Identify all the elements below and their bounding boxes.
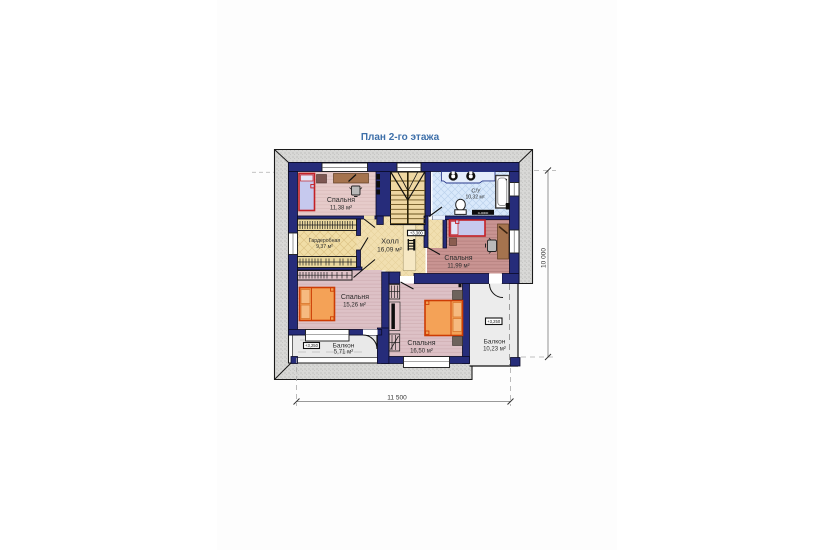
svg-text:+3,300: +3,300 bbox=[410, 231, 424, 236]
svg-text:Балкон: Балкон bbox=[333, 343, 355, 350]
svg-text:11,99 м²: 11,99 м² bbox=[447, 264, 469, 270]
svg-text:Спальня: Спальня bbox=[341, 294, 369, 301]
svg-text:16,50 м²: 16,50 м² bbox=[410, 349, 433, 355]
svg-text:15,26 м²: 15,26 м² bbox=[343, 303, 366, 309]
svg-text:11 500: 11 500 bbox=[387, 395, 407, 402]
svg-text:16,09 м²: 16,09 м² bbox=[377, 247, 403, 254]
svg-text:+3,250: +3,250 bbox=[487, 319, 501, 324]
svg-text:Балкон: Балкон bbox=[484, 339, 506, 346]
svg-text:о-оооо: о-оооо bbox=[478, 211, 489, 215]
svg-text:10 000: 10 000 bbox=[541, 248, 548, 268]
svg-text:11,38 м²: 11,38 м² bbox=[330, 206, 352, 212]
svg-text:Холл: Холл bbox=[381, 237, 399, 246]
svg-text:10,32 м²: 10,32 м² bbox=[465, 194, 484, 200]
svg-text:Спальня: Спальня bbox=[407, 340, 435, 347]
svg-text:Спальня: Спальня bbox=[327, 197, 355, 204]
svg-text:5,71 м²: 5,71 м² bbox=[334, 350, 353, 356]
svg-text:+3,250: +3,250 bbox=[305, 343, 319, 348]
svg-text:План 2-го этажа: План 2-го этажа bbox=[361, 132, 440, 143]
svg-text:10,23 м²: 10,23 м² bbox=[483, 347, 506, 353]
svg-text:Спальня: Спальня bbox=[444, 255, 472, 262]
svg-text:9,37 м²: 9,37 м² bbox=[316, 244, 333, 250]
